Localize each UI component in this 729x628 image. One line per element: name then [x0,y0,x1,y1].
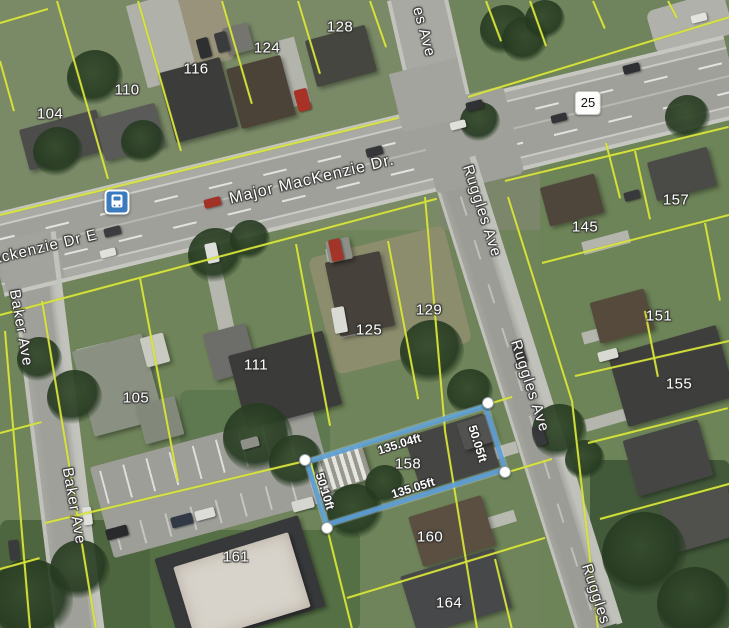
house-number: 145 [572,219,598,236]
house-number: 155 [666,376,692,393]
house-number: 104 [37,106,63,123]
lot-dimension-front: 135.04ft [376,431,423,458]
lot-dimension-east: 50.05ft [465,423,490,463]
lot-corner-dot [499,466,511,478]
house-number: 124 [254,40,280,57]
house-number: 160 [417,529,443,546]
house-number: 110 [114,82,139,99]
bus-stop-icon[interactable] [105,190,130,215]
house-number: 111 [244,357,268,374]
tree [121,120,165,164]
tree [565,440,605,480]
tree [33,127,83,177]
house-number: 157 [663,192,689,209]
house-number: 129 [416,302,442,319]
tree [230,220,270,260]
house-number: 128 [327,19,353,36]
bus-glyph [112,195,123,208]
house-number: 161 [223,549,249,566]
lot-corner-dot [299,454,311,466]
house-number: 125 [356,322,382,339]
house-number: 151 [646,308,672,325]
house-number: 105 [123,390,149,407]
lot-corner-dot [482,397,494,409]
lot-corner-dot [321,522,333,534]
satellite-map[interactable]: 135.04ft 135.05ft 50.10ft 50.05ft Major … [0,0,729,628]
highway-25-shield: 25 [575,91,601,115]
house-number: 164 [436,595,462,612]
tree [50,540,110,600]
house-number: 116 [183,61,208,78]
house-number-selected-lot: 158 [395,456,421,473]
